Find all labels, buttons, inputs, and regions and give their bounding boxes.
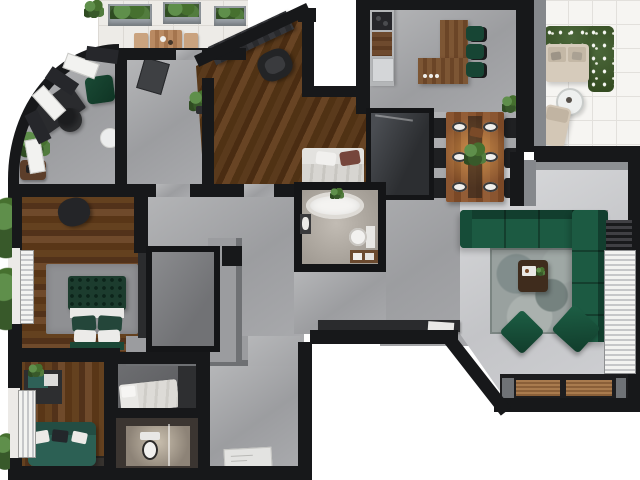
living-window-blinds — [604, 250, 636, 374]
kitchen-island — [440, 20, 468, 62]
walkin-closet-notch — [222, 246, 242, 266]
floor-plan-canvas — [0, 0, 640, 480]
terrace-planter — [163, 2, 201, 24]
planter-greenery — [216, 8, 244, 19]
wall-living-south — [494, 398, 640, 412]
towel — [353, 253, 362, 260]
wall-entry-east — [298, 342, 312, 480]
media-console — [500, 374, 628, 400]
console-end — [502, 378, 514, 398]
planter-greenery — [165, 4, 199, 17]
burner — [376, 16, 381, 21]
console-wood-slats — [516, 380, 560, 396]
coffee-table-plant — [536, 267, 545, 276]
bathroom1-tub-plant — [330, 188, 344, 199]
island-knob — [435, 74, 439, 78]
bar-stool — [466, 62, 484, 77]
tray-item — [525, 269, 529, 273]
outside-plants-mid — [0, 262, 12, 334]
sofa-pillow — [550, 51, 561, 60]
foyer-door-opening — [156, 184, 190, 197]
wall-guest-nook-top — [104, 352, 210, 364]
doormat-line — [231, 460, 247, 462]
bar-stool — [466, 44, 484, 59]
wall-bedroom1-east-upper — [302, 20, 314, 90]
island-knob — [423, 74, 427, 78]
bed-duvet — [302, 164, 364, 184]
wall-foyer-bedroom1 — [202, 78, 214, 188]
kitchen-cabinet-wood — [372, 32, 392, 56]
sink-basin — [302, 217, 309, 230]
sofa-pillow-white — [71, 431, 88, 445]
island-knob — [429, 74, 433, 78]
dining-plate — [483, 122, 498, 132]
kitchen-cooktop — [372, 12, 392, 30]
console-wood-slats — [566, 380, 612, 396]
dining-plate — [452, 182, 467, 192]
wall-living-north-face — [534, 162, 628, 170]
desk-white-box — [44, 374, 58, 386]
terrace-corner-plant — [84, 0, 104, 18]
bed-pillow-white — [315, 151, 336, 166]
bathroom2-toilet-bowl — [142, 440, 158, 460]
bathroom1-sink — [300, 214, 311, 234]
sofa-pillow — [572, 51, 583, 60]
table-item — [160, 36, 166, 42]
table-item — [566, 97, 572, 103]
terrace-planter — [214, 6, 246, 26]
wall-balcony-west — [516, 0, 534, 152]
outside-plants-upper — [0, 192, 12, 262]
bedroom1-bed — [302, 148, 364, 184]
towel — [365, 253, 374, 260]
bedroom1-door-opening — [244, 184, 274, 197]
burner — [383, 21, 388, 26]
bathroom1-shelf — [350, 250, 378, 263]
master-window-blinds — [20, 250, 34, 324]
wall-bottom — [8, 466, 312, 480]
bedroom2-plant — [28, 364, 44, 377]
bathroom1-toilet-tank — [366, 226, 375, 248]
living-dark-blind — [606, 220, 632, 250]
planter-greenery — [110, 6, 150, 19]
guest-wardrobe — [178, 364, 198, 408]
doormat-line — [231, 455, 253, 457]
wall-master-east — [134, 195, 148, 253]
wall-dining-living-stub — [510, 152, 524, 206]
sofa-armrest — [460, 210, 472, 248]
master-bed-headboard — [68, 276, 126, 310]
balcony-hedge-right — [588, 26, 614, 92]
bathroom2-toilet-tank — [140, 432, 160, 440]
wall-stub-face — [524, 160, 536, 206]
wall-kitchen-west — [356, 0, 370, 114]
armchair-seat — [263, 54, 288, 77]
dining-plate — [483, 182, 498, 192]
walkin-closet-room — [146, 246, 220, 352]
dining-centerpiece — [464, 142, 486, 166]
bathroom2-shower-glass — [168, 424, 170, 466]
outside-plants-lower — [0, 430, 10, 472]
dining-plate — [452, 122, 467, 132]
wall-kitchen-top — [364, 0, 522, 10]
balcony-sofa — [545, 44, 589, 82]
coffee-table — [518, 260, 548, 292]
wall-balcony-south — [534, 146, 640, 162]
kitchen-island-leg — [418, 58, 468, 84]
terrace-planter — [108, 4, 152, 26]
bar-stool — [466, 26, 484, 41]
table-item — [168, 40, 173, 45]
wall-office-east — [115, 56, 127, 188]
guest-bed-pillow — [121, 385, 136, 397]
console-end — [616, 378, 626, 398]
wall-corridor-south — [310, 330, 458, 344]
bathroom1-toilet-bowl — [349, 228, 367, 246]
guest-bed-duvet — [137, 379, 180, 411]
closet-glint — [375, 114, 413, 121]
bedroom2-window-blinds — [18, 390, 36, 458]
lounge-chair-back — [545, 106, 569, 123]
bedroom2-sofa — [28, 422, 96, 466]
kitchen-fridge — [372, 58, 394, 82]
wall-balcony-west-face — [534, 0, 546, 148]
sofa-pillow-dark — [51, 429, 68, 443]
